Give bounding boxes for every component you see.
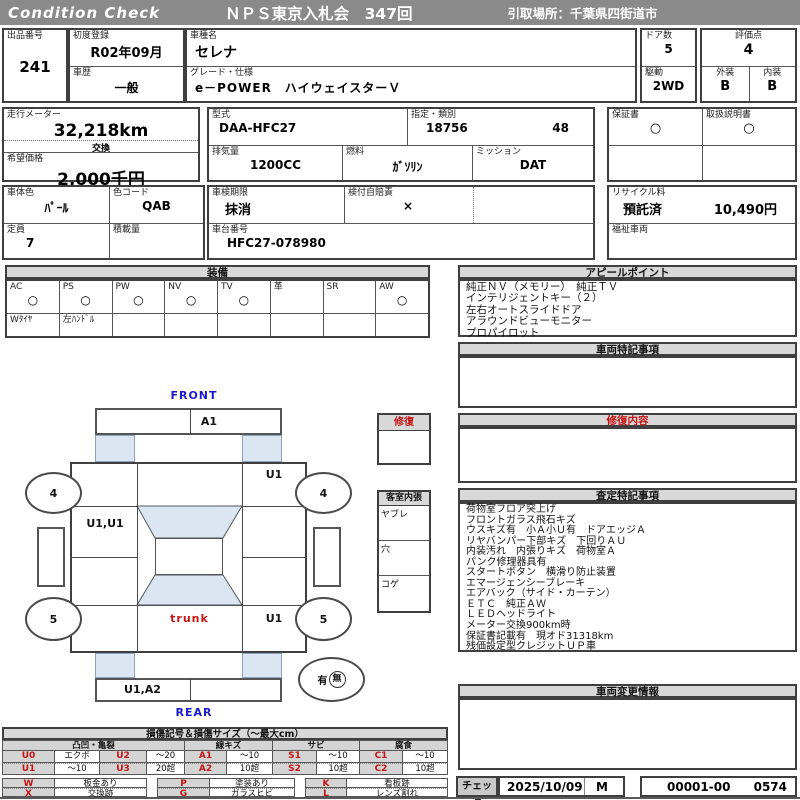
diagram-rear-label: REAR	[150, 706, 238, 719]
legend-code: U1	[2, 763, 55, 775]
spec-box: 型式 DAA-HFC27 指定・類別 18756 48 排気量 1200CC 燃…	[207, 107, 595, 182]
recycle-welfare-box: リサイクル料 預託済 10,490円 福祉車両	[607, 185, 797, 260]
diagram-windshield-corner-left	[95, 435, 135, 462]
equip-extra	[271, 314, 323, 316]
cabin-row-tear: ヤブレ	[379, 506, 429, 541]
drive-value: 2WD	[642, 79, 695, 93]
color-code-value: QAB	[110, 199, 203, 213]
registration-box: 初度登録 R02年09月 車歴 一般	[68, 28, 185, 103]
legend-code: K	[305, 778, 347, 788]
warranty-mark: ○	[609, 121, 702, 136]
diagram-rear-corner-right	[242, 653, 282, 678]
assessment-header: 査定特記事項	[458, 488, 797, 502]
equip-label: TV	[218, 281, 270, 293]
legend-symbol-row-1: W 板金あり P 塗装あり K 看板跡	[2, 778, 448, 788]
equip-mark: ○	[218, 293, 270, 307]
legend-code: A2	[185, 763, 227, 775]
repair-detail-header: 修復内容	[458, 413, 797, 427]
legend-code: G	[157, 788, 210, 797]
legend-symbol-row-2: X 交換跡 G ガラスヒビ L レンズ割れ	[2, 788, 448, 797]
equip-extra: 左ﾊﾝﾄﾞﾙ	[60, 314, 112, 326]
class-label: 指定・類別	[408, 109, 593, 121]
check-number-2: 0574	[754, 780, 787, 794]
legend-title: 損傷記号＆損傷サイズ（～最大cm）	[2, 727, 448, 740]
equip-mark: ○	[60, 293, 112, 307]
legend-data-row-2: U1 ～10 U3 20超 A2 10超 S2 10超 C2 10超	[2, 763, 448, 775]
equip-mark: ○	[165, 293, 217, 307]
equip-mark: ○	[113, 293, 165, 307]
odometer-price-box: 走行メーター 32,218km 交換 希望価格 2,000千円	[2, 107, 200, 182]
legend-val: 20超	[147, 763, 185, 775]
history-label: 車歴	[70, 67, 183, 79]
legend-code: C2	[360, 763, 403, 775]
equip-extra	[324, 314, 376, 316]
exterior-grade-value: B	[702, 79, 749, 94]
assessment-line: 残価設定型クレジットＵＰ車	[466, 642, 789, 653]
welfare-label: 福祉車両	[609, 224, 795, 236]
model-name-value: セレナ	[187, 42, 635, 62]
diagram-front-right-mark: U1	[244, 468, 304, 481]
color-capacity-box: 車体色 ﾊﾟｰﾙ 色コード QAB 定員 7 積載量	[2, 185, 205, 260]
lot-number-value: 241	[4, 58, 66, 76]
diagram-hood	[95, 408, 282, 435]
recycle-status: 預託済	[623, 199, 662, 218]
legend-code: P	[157, 778, 210, 788]
equip-extra	[165, 314, 217, 316]
legend-group: 凸凹・亀裂	[2, 740, 185, 751]
cabin-lining-title: 客室内張	[379, 492, 429, 506]
diagram-front-label: FRONT	[150, 389, 238, 402]
diagram-hood-mark: A1	[194, 415, 224, 428]
legend-val: ～20	[147, 751, 185, 763]
check-number-1: 00001-00	[667, 780, 730, 794]
diagram-wheel-front-left: 4	[25, 472, 82, 514]
appeal-line: プロパイロット	[466, 328, 789, 339]
color-code-label: 色コード	[110, 187, 203, 199]
equip-extra	[218, 314, 270, 316]
mission-value: DAT	[473, 158, 593, 172]
legend-code: U0	[2, 751, 55, 763]
appeal-header: アピールポイント	[458, 265, 797, 279]
auction-sheet: Condition Check ＮＰＳ東京入札会 347回 引取場所：千葉県四街…	[0, 0, 800, 800]
legend-val: 塗装あり	[210, 778, 295, 788]
repair-mini-title: 修復	[379, 415, 429, 431]
check-number-box: 00001-00 0574	[640, 776, 797, 797]
auction-title: ＮＰＳ東京入札会 347回	[225, 2, 412, 24]
repair-detail-body	[458, 427, 797, 483]
insurance-label: 検付自賠責	[345, 187, 593, 199]
assessment-body: 荷物室フロア突上げ フロントガラス飛石キズ ウスキズ有 小Ａ小Ｕ有 ドアエッジＡ…	[458, 502, 797, 652]
legend-val: エクボ	[55, 751, 100, 763]
wheel-mark: 4	[320, 487, 328, 500]
exterior-grade-label: 外装	[702, 67, 749, 79]
diagram-trunk-label: trunk	[137, 612, 242, 625]
cabin-lining-box: 客室内張 ヤブレ 穴 コゲ	[377, 490, 431, 613]
legend-code: A1	[185, 751, 227, 763]
change-info-body	[458, 698, 797, 770]
vehicle-notes-header: 車両特記事項	[458, 342, 797, 356]
legend-code: U2	[100, 751, 147, 763]
vehicle-notes-body	[458, 356, 797, 408]
equip-mark: ○	[7, 293, 59, 307]
warranty-label: 保証書	[609, 109, 702, 121]
model-code-label: 型式	[209, 109, 407, 121]
history-value: 一般	[70, 79, 183, 96]
lot-number-box: 出品番号 241	[2, 28, 68, 103]
class-value-1: 18756	[426, 121, 468, 135]
equipment-header: 装備	[5, 265, 430, 279]
recycle-value: 10,490円	[714, 199, 777, 218]
score-box: 評価点 4 外装 B 内装 B	[700, 28, 797, 103]
diagram-windshield-corner-right	[242, 435, 282, 462]
wheel-mark: 5	[320, 613, 328, 626]
assessment-line: 荷物室フロア突上げ	[466, 505, 789, 516]
fuel-value: ｶﾞｿﾘﾝ	[343, 158, 472, 175]
interior-grade-label: 内装	[750, 67, 796, 79]
legend-val: 10超	[403, 763, 448, 775]
inspection-value: 抹消	[209, 199, 344, 218]
grade-label: グレード・仕様	[187, 67, 635, 79]
displacement-value: 1200CC	[209, 158, 342, 172]
recycle-label: リサイクル料	[609, 187, 795, 199]
check-date-box: 2025/10/09 M	[498, 776, 625, 797]
check-date: 2025/10/09	[507, 780, 583, 794]
equipment-table: AC○ PS○ PW○ NV○ TV○ 革 SR AW○ Wﾀｲﾔ 左ﾊﾝﾄﾞﾙ	[5, 279, 430, 338]
equip-label: PW	[113, 281, 165, 293]
model-code-value: DAA-HFC27	[209, 121, 407, 135]
equip-extra	[376, 314, 428, 316]
mission-label: ミッション	[473, 146, 593, 158]
spare-tire-indicator: 有 無	[298, 657, 365, 702]
legend-group: 線キズ	[185, 740, 273, 751]
inspection-chassis-box: 車検期限 抹消 検付自賠責 × 車台番号 HFC27-078980	[207, 185, 595, 260]
equip-label: NV	[165, 281, 217, 293]
class-value-2: 48	[552, 121, 569, 135]
first-registration-value: R02年09月	[70, 42, 183, 61]
odometer-value: 32,218km	[4, 121, 198, 141]
legend-val: 10超	[227, 763, 273, 775]
appeal-line: アラウンドビューモニター	[466, 316, 789, 327]
legend-code: S2	[273, 763, 317, 775]
equip-label: AC	[7, 281, 59, 293]
assessment-line: メーター交換900km時	[466, 621, 789, 632]
check-label: チェック	[456, 776, 498, 797]
displacement-label: 排気量	[209, 146, 342, 158]
diagram-side-right	[313, 527, 341, 587]
legend-group: 腐食	[360, 740, 448, 751]
diagram-left-door-mark: U1,U1	[75, 517, 135, 530]
legend-code: W	[2, 778, 55, 788]
drive-label: 駆動	[642, 67, 695, 79]
header-bar: Condition Check ＮＰＳ東京入札会 347回 引取場所：千葉県四街…	[0, 0, 800, 25]
lot-number-label: 出品番号	[4, 30, 66, 42]
repair-mini-box: 修復	[377, 413, 431, 465]
legend-code: U3	[100, 763, 147, 775]
equip-label: SR	[324, 281, 376, 293]
model-box: 車種名 セレナ グレード・仕様 e－POWER ハイウェイスターＶ	[185, 28, 637, 103]
fuel-label: 燃料	[343, 146, 472, 158]
doors-value: 5	[642, 42, 695, 56]
price-label: 希望価格	[4, 153, 198, 165]
diagram-rear-right-mark: U1	[244, 612, 304, 625]
inspection-label: 車検期限	[209, 187, 344, 199]
appeal-body: 純正ＮＶ（メモリー） 純正ＴＶ インテリジェントキー（２） 左右オートスライドド…	[458, 279, 797, 337]
bottom-rule	[0, 797, 800, 799]
score-label: 評価点	[702, 30, 795, 42]
doors-drive-box: ドア数 5 駆動 2WD	[640, 28, 697, 103]
diagram-wheel-rear-left: 5	[25, 597, 82, 641]
spare-none-circled: 無	[329, 671, 346, 688]
body-color-label: 車体色	[4, 187, 109, 199]
legend-val: ～10	[403, 751, 448, 763]
capacity-value: 7	[4, 236, 109, 250]
wheel-mark: 5	[50, 613, 58, 626]
legend-code: X	[2, 788, 55, 797]
legend-code: C1	[360, 751, 403, 763]
manual-mark: ○	[703, 121, 795, 136]
diagram-roof	[155, 538, 223, 575]
legend-val: ガラスヒビ	[210, 788, 295, 797]
equip-extra: Wﾀｲﾔ	[7, 314, 59, 326]
wheel-mark: 4	[50, 487, 58, 500]
legend-code: L	[305, 788, 347, 797]
cabin-row-hole: 穴	[379, 541, 429, 576]
equip-label: AW	[376, 281, 428, 293]
body-color-value: ﾊﾟｰﾙ	[4, 199, 109, 216]
diagram-side-left	[37, 527, 65, 587]
interior-grade-value: B	[750, 79, 796, 94]
legend-val: ～10	[227, 751, 273, 763]
manual-label: 取扱説明書	[703, 109, 795, 121]
legend-group-row: 凸凹・亀裂 線キズ サビ 腐食	[2, 740, 448, 751]
odometer-label: 走行メーター	[4, 109, 198, 121]
legend-data-row-1: U0 エクボ U2 ～20 A1 ～10 S1 ～10 C1 ～10	[2, 751, 448, 763]
load-label: 積載量	[110, 224, 203, 236]
first-registration-label: 初度登録	[70, 30, 183, 42]
legend-val: レンズ割れ	[347, 788, 448, 797]
legend-val: 看板跡	[347, 778, 448, 788]
score-value: 4	[702, 42, 795, 58]
legend-val: 10超	[317, 763, 360, 775]
equip-label: 革	[271, 281, 323, 293]
insurance-mark: ×	[345, 199, 593, 213]
doors-label: ドア数	[642, 30, 695, 42]
capacity-label: 定員	[4, 224, 109, 236]
legend-val: ～10	[55, 763, 100, 775]
diagram-bumper-mark: U1,A2	[95, 683, 190, 696]
equip-mark: ○	[376, 293, 428, 307]
pickup-location: 引取場所：千葉県四街道市	[507, 3, 657, 22]
equip-extra	[113, 314, 165, 316]
legend-code: S1	[273, 751, 317, 763]
chassis-value: HFC27-078980	[209, 236, 593, 250]
model-name-label: 車種名	[187, 30, 635, 42]
spare-has-label: 有	[318, 672, 328, 687]
chassis-label: 車台番号	[209, 224, 593, 236]
change-info-header: 車両変更情報	[458, 684, 797, 698]
legend-val: 板金あり	[55, 778, 147, 788]
legend-val: ～10	[317, 751, 360, 763]
brand-logo: Condition Check	[8, 4, 160, 22]
legend-group: サビ	[273, 740, 360, 751]
check-inspector: M	[596, 780, 608, 794]
documents-box: 保証書 ○ 取扱説明書 ○	[607, 107, 797, 182]
cabin-row-burn: コゲ	[379, 576, 429, 610]
equip-label: PS	[60, 281, 112, 293]
diagram-rear-corner-left	[95, 653, 135, 678]
grade-value: e－POWER ハイウェイスターＶ	[187, 79, 635, 96]
legend-val: 交換跡	[55, 788, 147, 797]
